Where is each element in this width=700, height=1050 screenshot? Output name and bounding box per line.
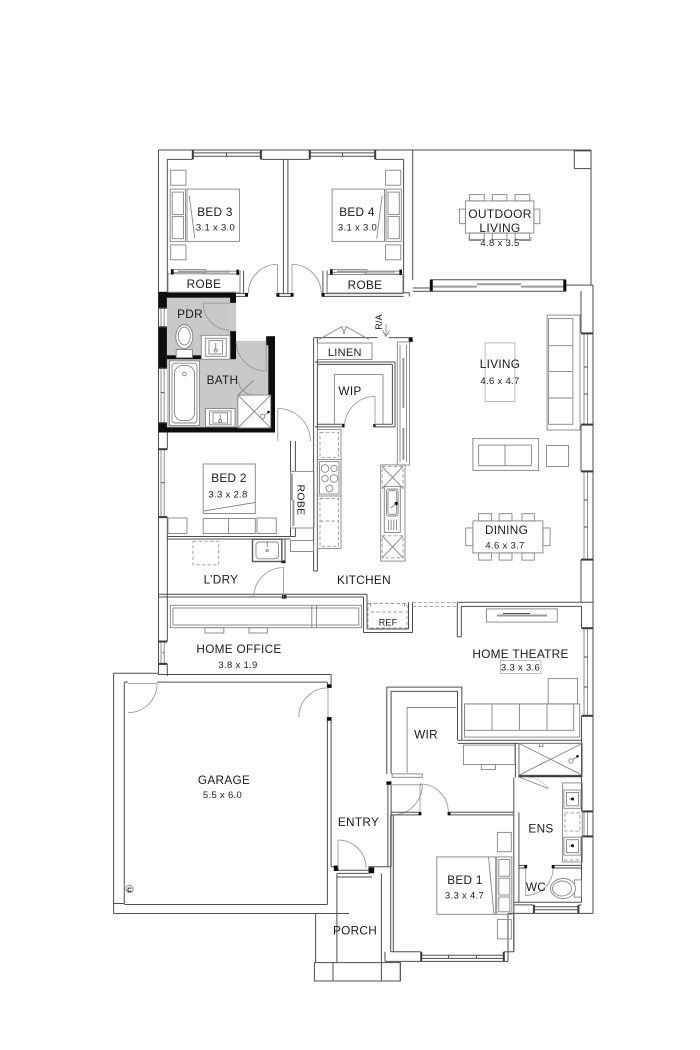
svg-text:ROBE: ROBE (348, 278, 383, 292)
svg-text:5.5 x 6.0: 5.5 x 6.0 (203, 790, 242, 801)
svg-text:4.6 x 4.7: 4.6 x 4.7 (480, 376, 519, 387)
svg-text:BED 1: BED 1 (447, 873, 483, 887)
svg-text:ENS: ENS (528, 822, 553, 836)
svg-text:3.8 x 1.9: 3.8 x 1.9 (218, 660, 257, 671)
svg-text:ROBE: ROBE (187, 277, 222, 291)
svg-text:LIVING: LIVING (479, 221, 520, 235)
svg-text:HOME THEATRE: HOME THEATRE (472, 647, 568, 661)
svg-text:3.3 x 4.7: 3.3 x 4.7 (445, 891, 484, 902)
svg-text:GARAGE: GARAGE (198, 773, 250, 787)
svg-text:BATH: BATH (207, 373, 239, 387)
svg-text:3.1 x 3.0: 3.1 x 3.0 (196, 223, 235, 234)
svg-text:HOME OFFICE: HOME OFFICE (196, 642, 281, 656)
svg-text:PDR: PDR (177, 307, 203, 321)
svg-text:KITCHEN: KITCHEN (337, 573, 391, 587)
svg-text:LIVING: LIVING (480, 357, 520, 371)
svg-text:L’DRY: L’DRY (204, 573, 239, 587)
svg-text:C: C (127, 887, 132, 894)
svg-text:R/A: R/A (374, 314, 384, 330)
svg-text:REF: REF (379, 618, 398, 628)
svg-text:WIP: WIP (338, 384, 361, 398)
svg-text:WIR: WIR (414, 728, 438, 742)
svg-text:ENTRY: ENTRY (338, 815, 379, 829)
svg-text:ROBE: ROBE (295, 485, 307, 516)
svg-text:DINING: DINING (485, 523, 528, 537)
svg-text:BED 3: BED 3 (197, 205, 233, 219)
svg-text:OUTDOOR: OUTDOOR (468, 207, 531, 221)
svg-text:LINEN: LINEN (328, 347, 362, 359)
svg-text:4.8 x 3.5: 4.8 x 3.5 (480, 238, 519, 249)
svg-text:3.3 x 3.6: 3.3 x 3.6 (501, 663, 540, 674)
svg-text:PORCH: PORCH (333, 924, 377, 938)
svg-text:3.1 x 3.0: 3.1 x 3.0 (338, 223, 377, 234)
svg-text:WC: WC (526, 880, 546, 894)
svg-text:4.6 x 3.7: 4.6 x 3.7 (485, 541, 524, 552)
svg-text:BED 4: BED 4 (339, 205, 375, 219)
svg-text:BED 2: BED 2 (211, 471, 247, 485)
svg-text:3.3 x 2.8: 3.3 x 2.8 (208, 490, 247, 501)
